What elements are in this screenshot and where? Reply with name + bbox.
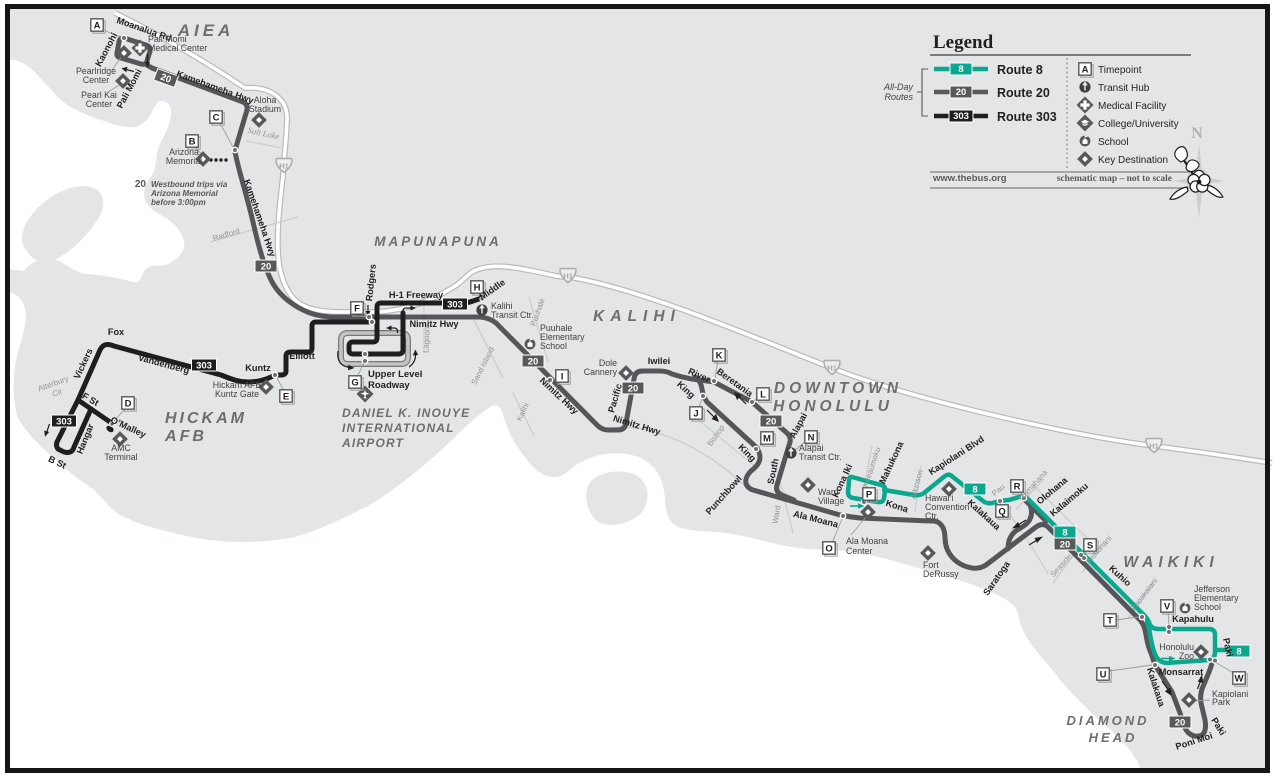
svg-text:Elliott: Elliott xyxy=(289,351,315,361)
svg-text:School: School xyxy=(1194,602,1221,612)
svg-text:schematic map – not to scale: schematic map – not to scale xyxy=(1057,174,1172,184)
svg-text:Roadway: Roadway xyxy=(368,380,410,391)
svg-text:20: 20 xyxy=(135,179,147,190)
svg-text:D: D xyxy=(125,398,132,409)
svg-text:K: K xyxy=(716,350,723,361)
svg-text:Routes: Routes xyxy=(884,92,913,102)
svg-text:School: School xyxy=(1098,137,1129,148)
svg-text:Fox: Fox xyxy=(108,327,125,337)
svg-text:AIEA: AIEA xyxy=(177,21,235,40)
svg-text:R: R xyxy=(1014,481,1021,492)
svg-text:8: 8 xyxy=(972,484,977,495)
svg-text:20: 20 xyxy=(956,87,967,98)
svg-text:Timepoint: Timepoint xyxy=(1098,65,1142,76)
svg-text:Cannery: Cannery xyxy=(584,367,618,377)
svg-text:C: C xyxy=(213,112,220,123)
svg-text:H-1 Freeway: H-1 Freeway xyxy=(389,290,444,300)
svg-text:Kuntz Gate: Kuntz Gate xyxy=(215,389,259,399)
svg-text:Kapahulu: Kapahulu xyxy=(1172,614,1214,624)
svg-text:Lagoon: Lagoon xyxy=(421,327,431,353)
svg-text:Village: Village xyxy=(818,496,844,506)
svg-text:Medical Facility: Medical Facility xyxy=(1098,101,1166,112)
svg-text:20: 20 xyxy=(628,383,639,394)
svg-text:DeRussy: DeRussy xyxy=(923,569,959,579)
svg-text:Park: Park xyxy=(1212,697,1231,707)
svg-text:DOWNTOWN: DOWNTOWN xyxy=(774,380,902,397)
svg-text:B: B xyxy=(189,136,196,147)
svg-text:303: 303 xyxy=(953,111,969,122)
svg-text:N: N xyxy=(1191,125,1203,142)
svg-text:303: 303 xyxy=(196,360,212,371)
svg-text:Route 8: Route 8 xyxy=(997,63,1043,77)
svg-text:U: U xyxy=(1100,669,1107,680)
svg-text:20: 20 xyxy=(528,356,539,367)
svg-text:Route 303: Route 303 xyxy=(997,110,1057,124)
svg-text:WAIKIKI: WAIKIKI xyxy=(1123,554,1218,571)
svg-text:M: M xyxy=(763,433,771,444)
svg-text:College/University: College/University xyxy=(1098,119,1179,130)
svg-text:DANIEL K. INOUYE: DANIEL K. INOUYE xyxy=(342,406,470,420)
svg-text:AFB: AFB xyxy=(164,428,207,445)
svg-text:AIRPORT: AIRPORT xyxy=(341,436,405,450)
svg-text:Ala Moana: Ala Moana xyxy=(846,536,888,546)
svg-text:303: 303 xyxy=(447,299,463,310)
svg-text:Center: Center xyxy=(86,99,112,109)
svg-text:Kuntz: Kuntz xyxy=(245,363,271,373)
svg-text:Center: Center xyxy=(83,75,109,85)
svg-text:HEAD: HEAD xyxy=(1089,730,1138,745)
svg-text:Monsarrat: Monsarrat xyxy=(1159,667,1203,677)
svg-text:Westbound trips via: Westbound trips via xyxy=(151,180,228,189)
svg-text:HICKAM: HICKAM xyxy=(165,410,247,427)
svg-text:8: 8 xyxy=(958,64,963,75)
svg-text:Transit Ctr.: Transit Ctr. xyxy=(491,310,534,320)
svg-text:Memorial: Memorial xyxy=(166,156,202,166)
svg-text:W: W xyxy=(1235,673,1244,684)
svg-text:DIAMOND: DIAMOND xyxy=(1066,713,1149,728)
svg-text:Route 20: Route 20 xyxy=(997,86,1050,100)
svg-text:Nimitz Hwy: Nimitz Hwy xyxy=(409,319,459,329)
svg-text:Medical Center: Medical Center xyxy=(148,43,207,53)
svg-text:Ctr.: Ctr. xyxy=(925,511,939,521)
svg-text:All-Day: All-Day xyxy=(883,82,914,92)
svg-text:20: 20 xyxy=(1175,717,1186,728)
svg-text:www.thebus.org: www.thebus.org xyxy=(932,173,1007,184)
svg-text:F: F xyxy=(354,303,360,314)
svg-text:V: V xyxy=(1164,601,1171,612)
svg-text:Iwilei: Iwilei xyxy=(648,356,670,366)
svg-text:8: 8 xyxy=(1236,646,1241,657)
svg-text:P: P xyxy=(866,489,873,500)
svg-text:Terminal: Terminal xyxy=(104,452,137,462)
svg-text:20: 20 xyxy=(766,416,777,427)
svg-text:20: 20 xyxy=(261,261,272,272)
svg-text:before 3:00pm: before 3:00pm xyxy=(151,198,206,207)
svg-text:J: J xyxy=(693,408,698,419)
svg-text:20: 20 xyxy=(1060,539,1071,550)
svg-text:Stadium: Stadium xyxy=(249,104,281,114)
svg-text:Arizona Memorial: Arizona Memorial xyxy=(150,189,218,198)
svg-text:INTERNATIONAL: INTERNATIONAL xyxy=(342,421,455,435)
svg-text:O: O xyxy=(825,543,832,554)
svg-text:8: 8 xyxy=(1062,527,1067,538)
svg-text:KALIHI: KALIHI xyxy=(593,308,681,325)
svg-text:Transit Ctr.: Transit Ctr. xyxy=(799,452,842,462)
svg-text:G: G xyxy=(351,377,358,388)
svg-text:Center: Center xyxy=(846,546,872,556)
svg-text:School: School xyxy=(540,341,567,351)
svg-text:A: A xyxy=(94,20,101,31)
svg-text:I: I xyxy=(561,371,564,382)
svg-text:MAPUNAPUNA: MAPUNAPUNA xyxy=(374,234,502,249)
svg-text:N: N xyxy=(808,432,815,443)
svg-text:E: E xyxy=(283,391,289,402)
svg-text:Transit Hub: Transit Hub xyxy=(1098,83,1150,94)
svg-text:HONOLULU: HONOLULU xyxy=(773,398,893,415)
svg-text:Key Destination: Key Destination xyxy=(1098,155,1168,166)
svg-text:Legend: Legend xyxy=(933,32,994,53)
svg-text:Zoo: Zoo xyxy=(1179,651,1194,661)
svg-text:A: A xyxy=(1082,64,1089,75)
svg-text:303: 303 xyxy=(56,416,72,427)
svg-text:Q: Q xyxy=(998,506,1005,517)
svg-text:T: T xyxy=(1107,615,1113,626)
svg-text:L: L xyxy=(760,389,766,400)
svg-text:Upper Level: Upper Level xyxy=(368,369,422,380)
